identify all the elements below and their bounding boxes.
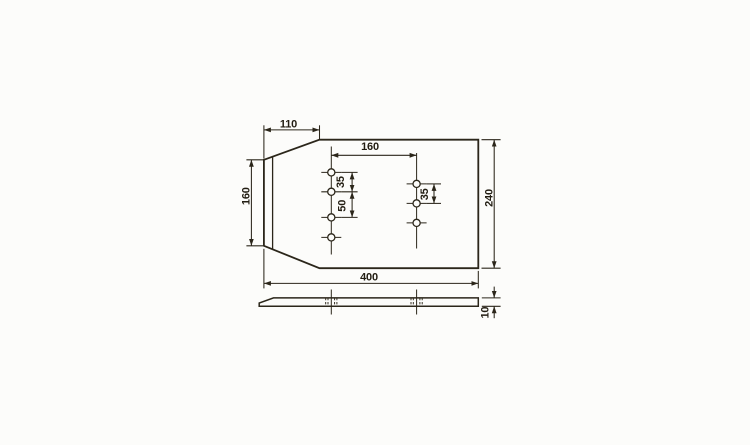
dimension-label: 35 [335,176,347,188]
hole [321,214,341,221]
hole-circle [413,219,420,226]
dim-hole-columns-spacing: 160 [331,141,416,155]
plate-outline [264,140,478,269]
dimension-label: 10 [479,307,491,319]
dim-plate-height: 240 [482,140,501,269]
hole [407,219,427,226]
hidden-hole-lines-right [411,290,422,315]
dimension-label: 240 [484,189,496,207]
hidden-hole-lines-left [326,290,337,315]
dimension-label: 400 [360,272,378,284]
hole-circle [328,234,335,241]
dim-left-edge-height: 160 [241,160,265,246]
side-view [259,290,478,315]
top-view [264,140,478,269]
dim-left-holes-pitch-middle: 50 [336,192,357,218]
dim-right-holes-pitch: 35 [419,184,441,204]
dimension-label: 35 [419,188,431,200]
dimension-label: 160 [361,141,379,153]
hole [321,169,341,176]
hole-circle [328,214,335,221]
hole [407,180,427,187]
drawing-canvas: 110 160 160 240 400 [0,0,750,445]
hole-circle [328,169,335,176]
hole-circle [413,180,420,187]
hole-circle [328,188,335,195]
side-profile-outline [259,298,478,306]
dim-taper-length: 110 [264,118,320,158]
hole [321,234,341,241]
dimension-label: 110 [280,118,297,130]
dim-thickness: 10 [479,287,500,319]
dimension-label: 50 [336,200,348,212]
dim-left-holes-pitch-top: 35 [335,172,358,191]
dimensions: 110 160 160 240 400 [241,118,501,318]
dimension-label: 160 [241,187,253,205]
hole [321,188,341,195]
technical-drawing: 110 160 160 240 400 [0,0,750,445]
